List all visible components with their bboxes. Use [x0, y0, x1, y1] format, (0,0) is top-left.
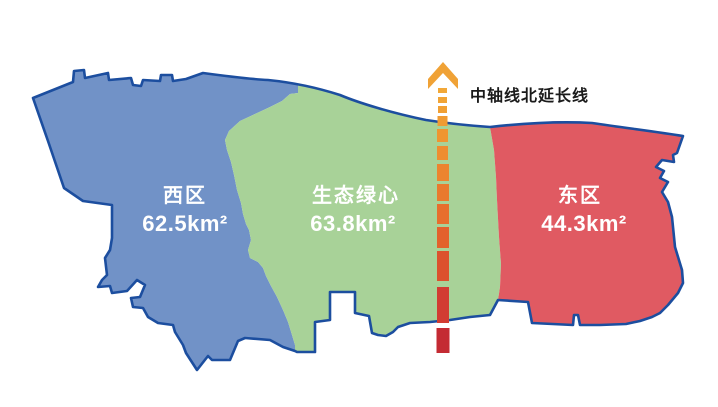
region-east-area: 44.3km²: [541, 213, 626, 235]
axis-label: 中轴线北延长线: [470, 89, 589, 105]
district-map: 西区 62.5km² 生态绿心 63.8km² 东区 44.3km² 中轴线北延…: [0, 0, 718, 407]
axis-dash: [437, 227, 449, 248]
axis-dash: [437, 204, 449, 224]
axis-dash: [437, 164, 449, 181]
axis-dash: [437, 251, 449, 281]
axis-dash: [437, 129, 448, 142]
axis-dash: [437, 146, 448, 160]
axis-dash: [437, 287, 449, 323]
axis-dash: [438, 97, 447, 103]
axis-dash: [437, 328, 450, 353]
axis-dash: [438, 106, 447, 113]
region-center-name: 生态绿心: [312, 186, 400, 206]
axis-dash: [437, 184, 449, 201]
region-center-area: 63.8km²: [310, 213, 395, 235]
region-west-name: 西区: [163, 186, 207, 206]
axis-arrow-icon: [428, 62, 458, 89]
axis-dash: [438, 88, 447, 93]
region-west-area: 62.5km²: [142, 213, 227, 235]
region-east-name: 东区: [558, 186, 602, 206]
axis-dash: [438, 116, 448, 126]
